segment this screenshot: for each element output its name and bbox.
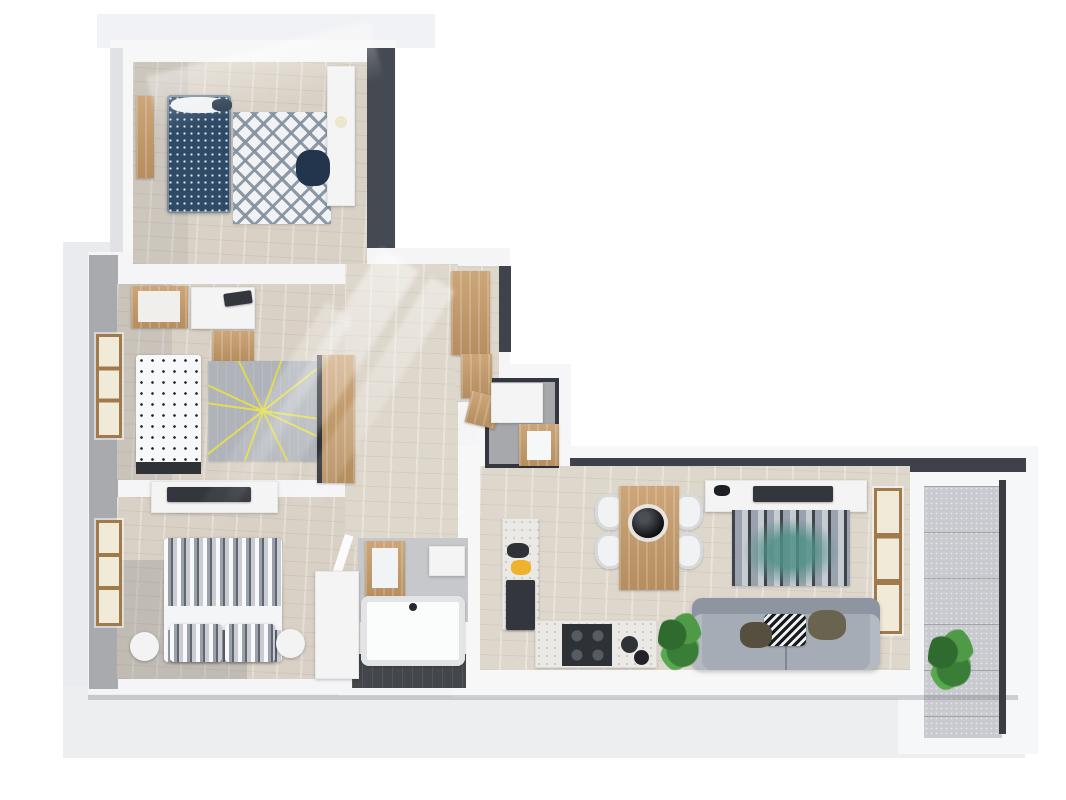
- entry-cabinet-upper: [451, 271, 490, 355]
- wc-shower: [491, 383, 543, 423]
- bottom-edge-shadow: [88, 695, 1018, 700]
- bathroom-mirror: [372, 548, 398, 588]
- dining-table: [619, 486, 679, 590]
- bedroom3-pillow-left: [170, 624, 222, 662]
- bedroom3-window: [96, 520, 122, 626]
- bedroom1-wall-shade-left: [110, 48, 123, 270]
- bedroom3-nightstand-left: [130, 632, 159, 661]
- balcony-railing: [999, 480, 1006, 734]
- wc-sink: [527, 431, 551, 460]
- kitchen-pot-small: [634, 650, 649, 665]
- bedroom1-chair: [296, 150, 330, 186]
- bedroom3-nightstand-right: [276, 629, 305, 658]
- bathroom-tub: [361, 596, 465, 666]
- bedroom2-window: [96, 334, 122, 438]
- bathroom-shelf: [429, 546, 465, 576]
- kitchen-cooktop: [562, 624, 612, 666]
- bedroom2-bed: [136, 355, 201, 467]
- bedroom2-chair: [212, 331, 254, 361]
- floor-plan-stage: [0, 0, 1066, 800]
- bedroom2-crib-mattress: [138, 291, 180, 322]
- balcony-floor: [924, 486, 1002, 738]
- balcony-plant: [928, 626, 974, 692]
- kitchen-fruit-bowl: [511, 560, 531, 575]
- living-plant: [658, 610, 702, 672]
- dining-bowl: [632, 508, 664, 538]
- bedroom1-lamp: [335, 116, 347, 128]
- kitchen-pot-large: [621, 636, 638, 653]
- living-media-item: [714, 485, 730, 496]
- bedroom2-bed-footboard: [136, 462, 201, 474]
- living-rug: [732, 510, 850, 586]
- sofa-pillow-brown: [740, 622, 772, 648]
- bedroom3-pillow-right: [225, 624, 275, 662]
- kitchen-small-appliance: [507, 543, 529, 558]
- sofa-pillow-olive: [808, 610, 846, 640]
- kitchen-fridge: [506, 580, 535, 630]
- bedroom1-door: [136, 96, 154, 178]
- living-tv: [753, 486, 833, 502]
- bedroom3-wardrobe: [315, 571, 359, 679]
- hallway-wall-dark-edge: [499, 266, 511, 352]
